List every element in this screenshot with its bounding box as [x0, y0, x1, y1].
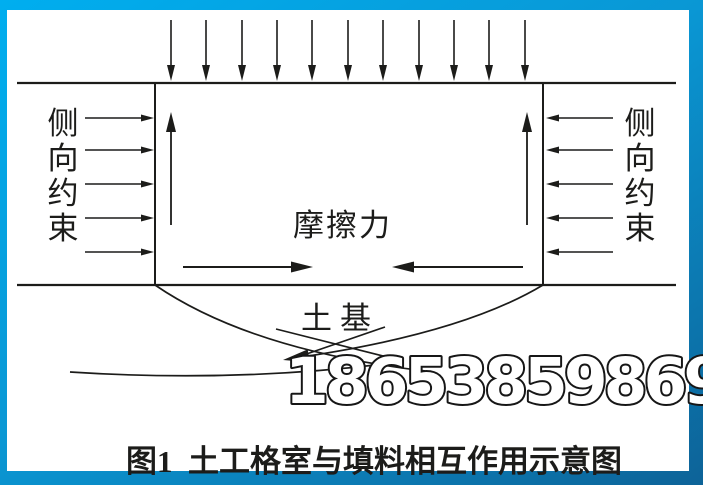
- label-char: 侧: [620, 106, 660, 141]
- uplift-arrow-right-icon: [522, 112, 532, 225]
- figure-frame: 18653859869 侧 向 约 束 侧 向 约 束 摩擦力 土基 图1 土工…: [0, 0, 703, 485]
- label-lateral-restraint-right: 侧 向 约 束: [620, 106, 660, 246]
- lateral-arrow-left-side-icon: [85, 115, 154, 122]
- lateral-arrow-right-side-icon: [546, 181, 613, 188]
- load-arrow-down-icon: [273, 20, 281, 81]
- lateral-arrow-left-side-icon: [85, 181, 154, 188]
- figure-caption: 图1 土工格室与填料相互作用示意图: [126, 436, 622, 481]
- label-soil-foundation: 土基: [301, 293, 379, 338]
- lateral-arrow-right-side-icon: [546, 115, 613, 122]
- label-friction-force: 摩擦力: [293, 200, 392, 245]
- friction-arrow-left-icon: [392, 262, 523, 273]
- lateral-arrow-left-side-icon: [85, 215, 154, 222]
- load-arrow-down-icon: [450, 20, 458, 81]
- load-arrow-down-icon: [379, 20, 387, 81]
- label-char: 向: [43, 141, 83, 176]
- load-arrow-down-icon: [167, 20, 175, 81]
- load-arrow-down-icon: [202, 20, 210, 81]
- lateral-arrow-right-side-icon: [546, 147, 613, 154]
- label-char: 束: [620, 211, 660, 246]
- label-char: 侧: [43, 106, 83, 141]
- uplift-arrow-left-icon: [166, 112, 176, 225]
- load-arrow-down-icon: [521, 20, 529, 81]
- label-char: 束: [43, 211, 83, 246]
- load-arrow-down-icon: [308, 20, 316, 81]
- lateral-arrow-right-side-icon: [546, 215, 613, 222]
- label-lateral-restraint-left: 侧 向 约 束: [43, 106, 83, 246]
- load-arrow-down-icon: [415, 20, 423, 81]
- label-char: 约: [620, 176, 660, 211]
- lateral-arrow-left-side-icon: [85, 249, 154, 256]
- lateral-arrow-left-side-icon: [85, 147, 154, 154]
- watermark-text: 18653859869: [285, 345, 703, 418]
- friction-arrow-right-icon: [183, 262, 313, 273]
- load-arrow-down-icon: [485, 20, 493, 81]
- label-char: 向: [620, 141, 660, 176]
- load-arrow-down-icon: [238, 20, 246, 81]
- label-char: 约: [43, 176, 83, 211]
- lateral-arrow-right-side-icon: [546, 249, 613, 256]
- load-arrow-down-icon: [344, 20, 352, 81]
